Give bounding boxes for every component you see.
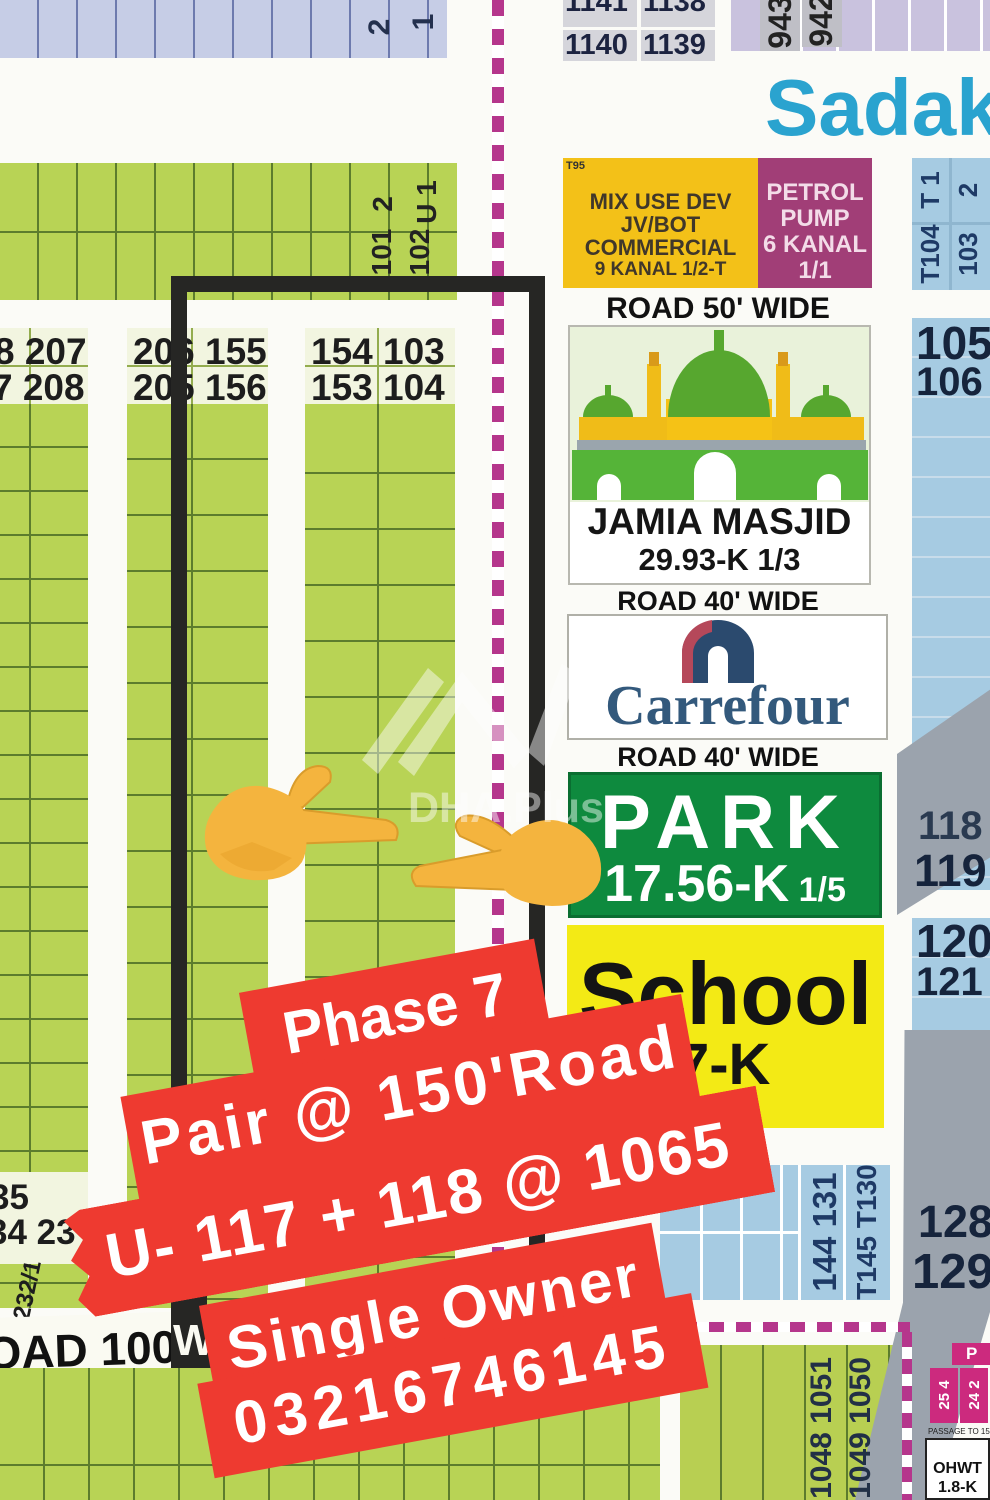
svg-text:DHA.Plus: DHA.Plus bbox=[408, 784, 604, 832]
